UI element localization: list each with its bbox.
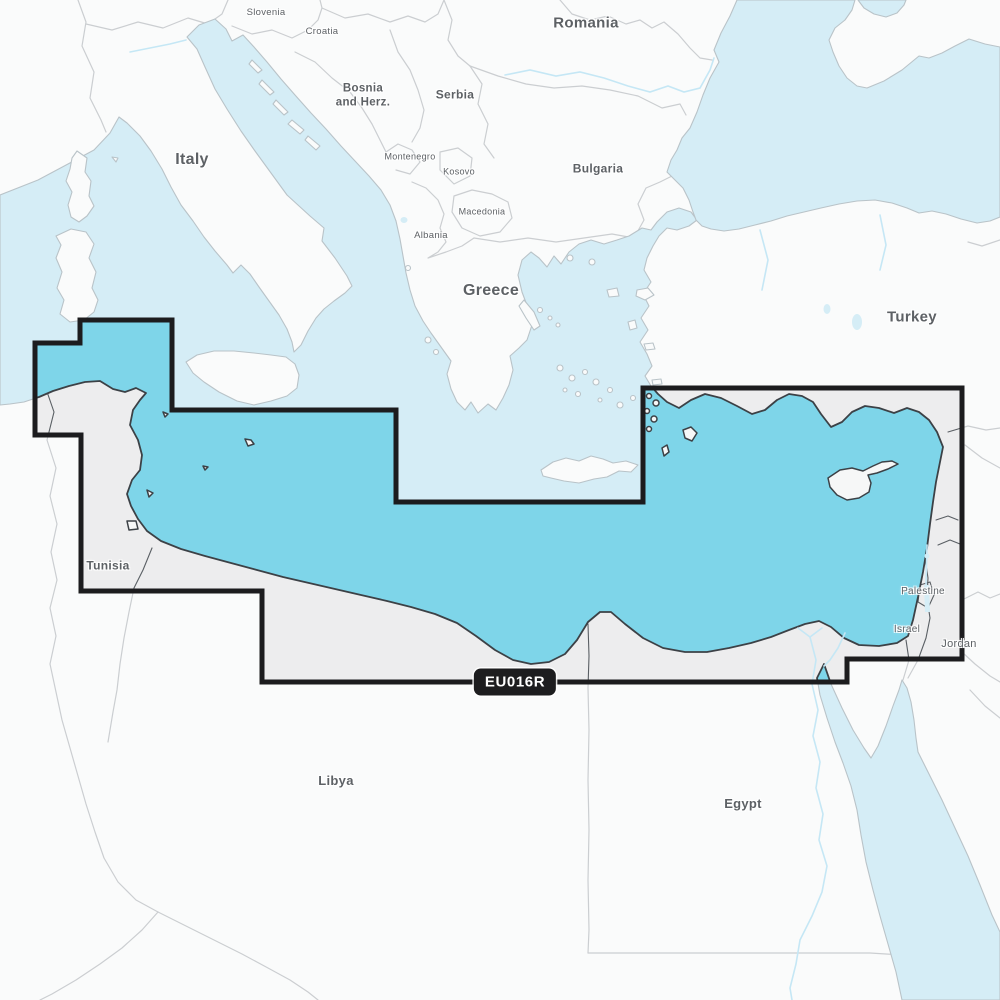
jordan-river [926,545,927,585]
sea-of-galilee [925,554,930,559]
dead-sea [924,585,930,612]
region-code-badge: EU016R [474,669,556,696]
map-viewport: SloveniaCroatiaBosnia and Herz.SerbiaIta… [0,0,1000,1000]
lake-beysehir [824,304,831,314]
lake-scutari [401,217,408,223]
lake-tuz [852,314,862,330]
map-canvas [0,0,1000,1000]
